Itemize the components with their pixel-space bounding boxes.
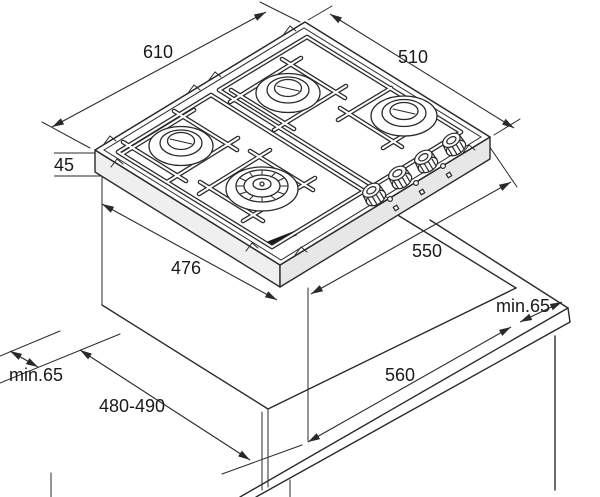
dim-label-hob-depth: 510: [398, 47, 428, 67]
dim-label-cutout-width: 560: [385, 365, 415, 385]
dim-label-hob-height: 45: [54, 155, 74, 175]
dim-label-clearance-right: min.65: [496, 296, 550, 316]
burner-front-right: [371, 96, 437, 136]
dim-label-clearance-left: min.65: [9, 365, 63, 385]
dim-label-body-width: 550: [412, 241, 442, 261]
burner-rear-right: [256, 74, 320, 113]
burner-rear-left: [149, 127, 213, 166]
burner-wok: [226, 167, 298, 211]
installation-diagram: 610 510 45 476 550 min.65 560 min.65 480…: [0, 0, 600, 497]
diagram-canvas: 610 510 45 476 550 min.65 560 min.65 480…: [0, 0, 600, 497]
dim-label-body-depth: 476: [171, 258, 201, 278]
dim-label-hob-width: 610: [143, 42, 173, 62]
dim-label-cutout-depth: 480-490: [99, 396, 165, 416]
